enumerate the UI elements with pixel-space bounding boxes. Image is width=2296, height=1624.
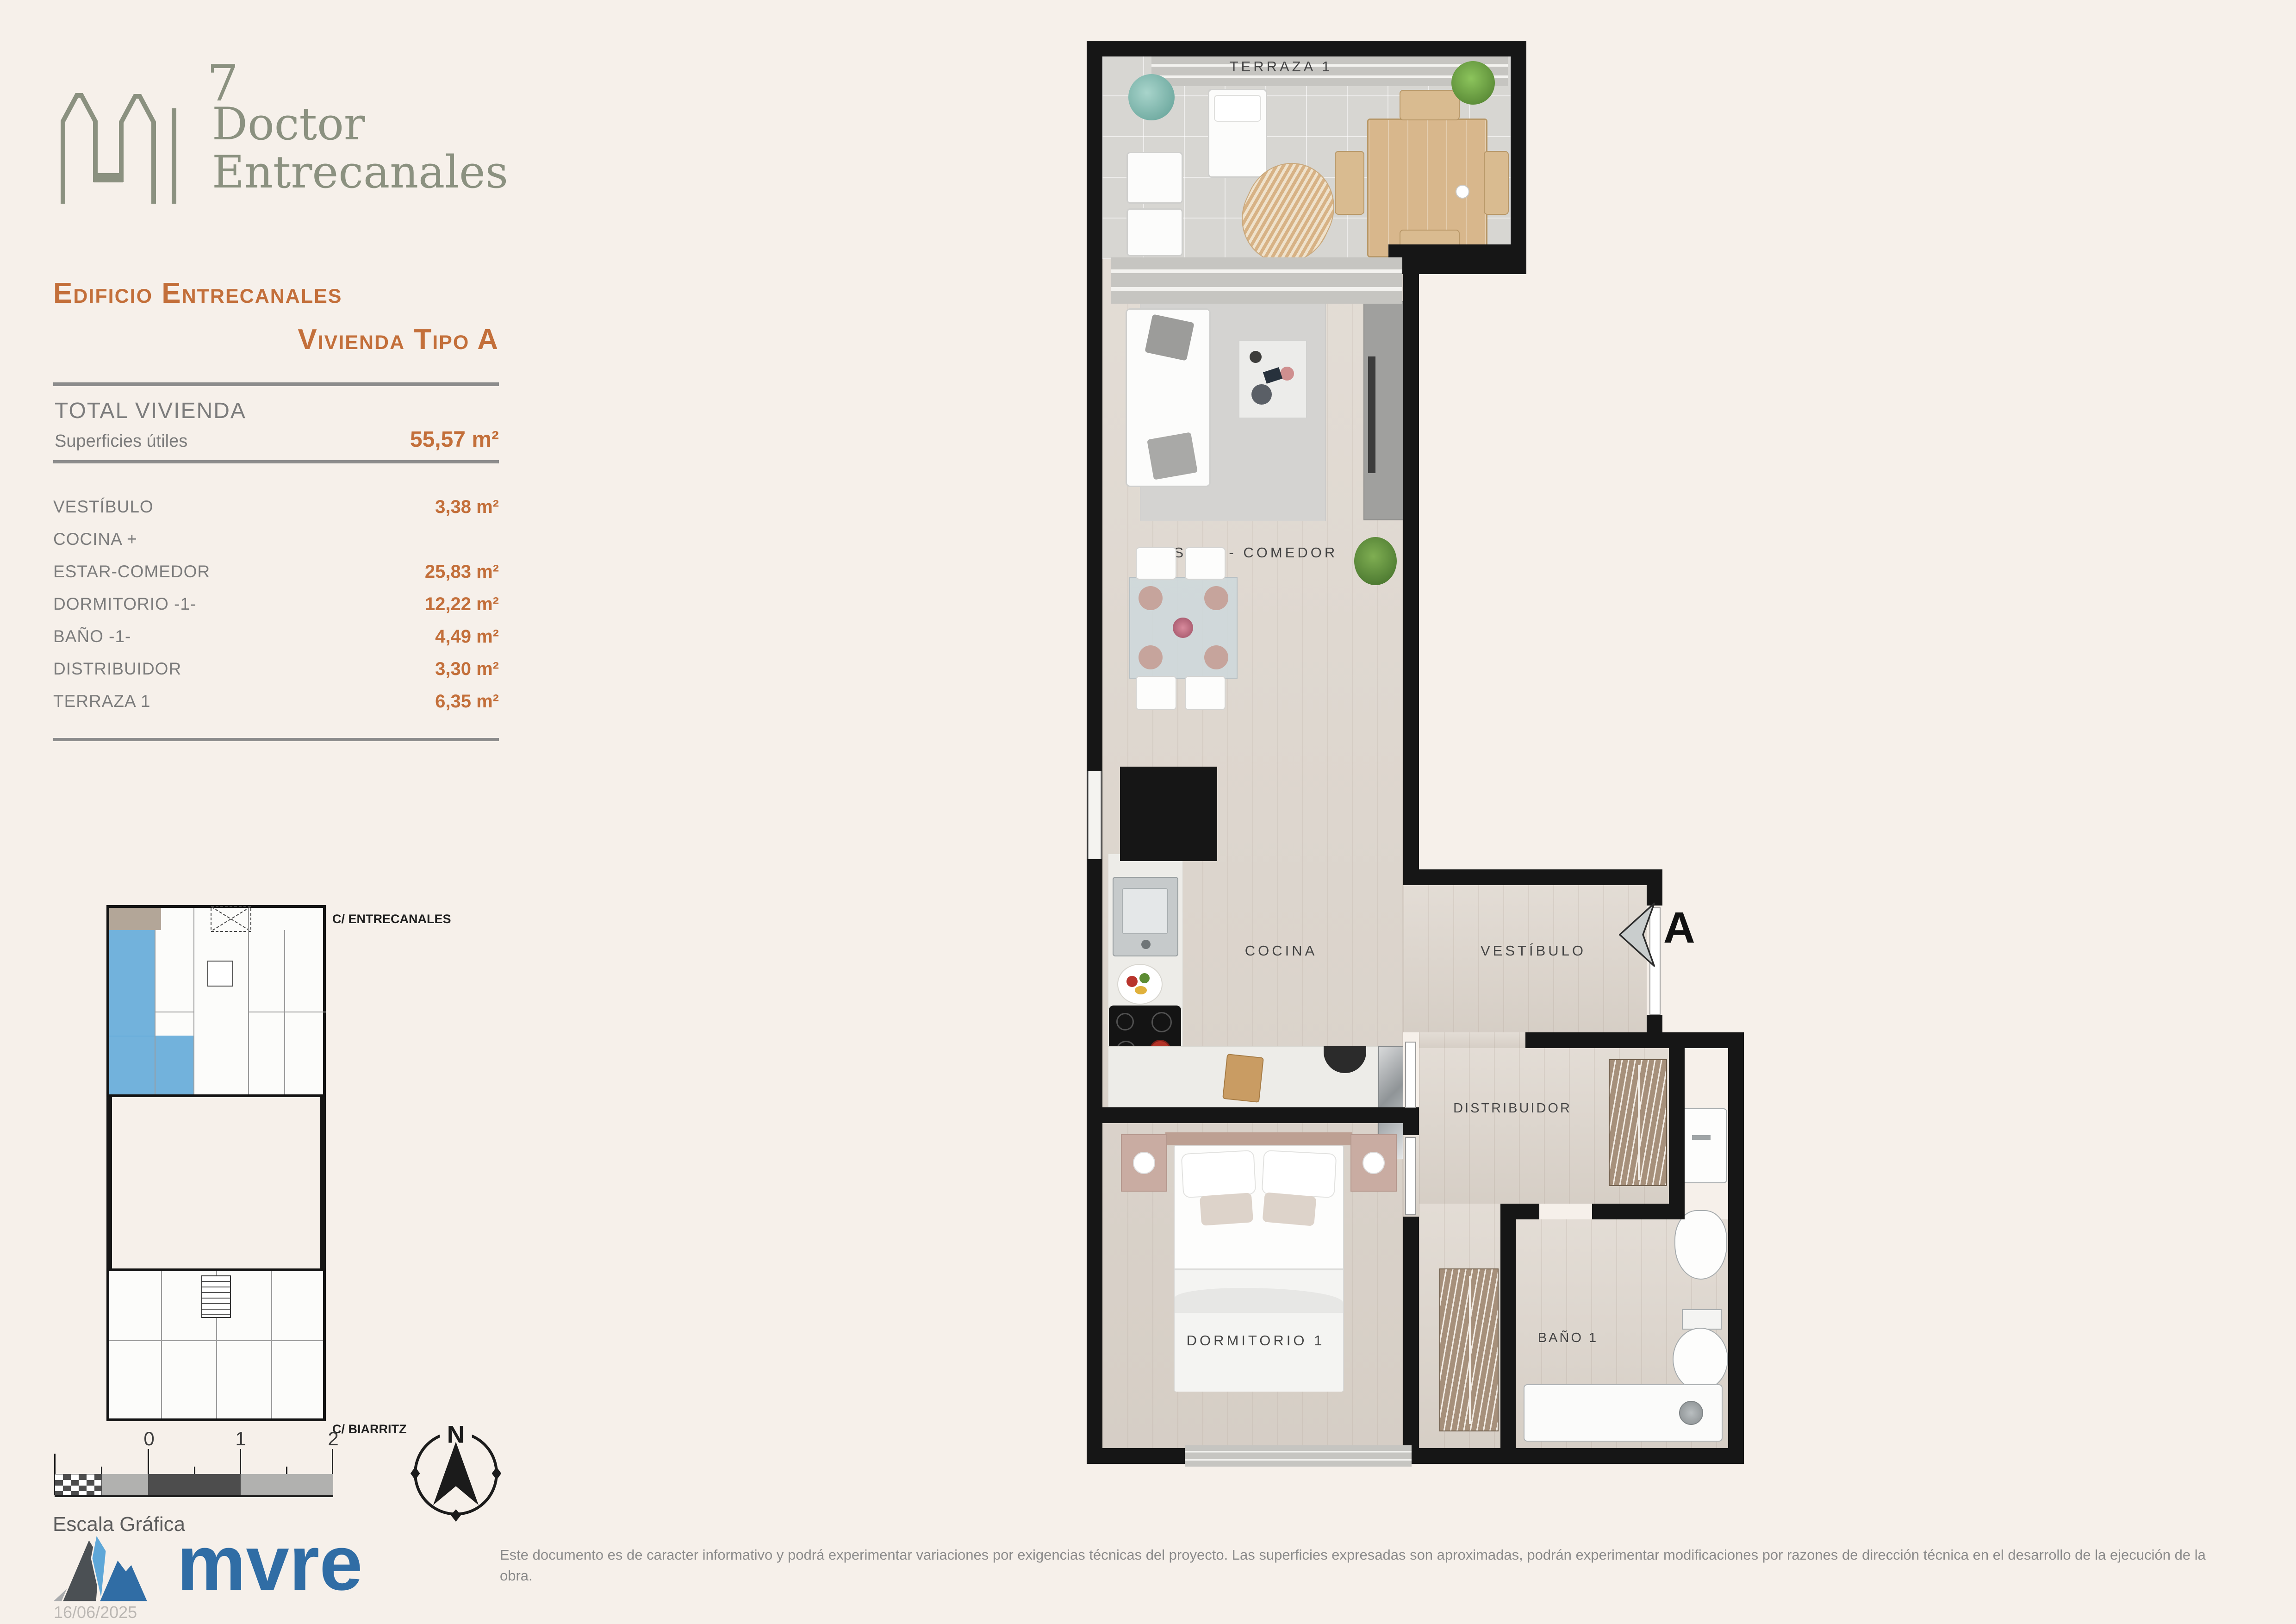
dining-table: [1129, 577, 1238, 679]
wall: [1500, 1219, 1516, 1448]
scale-label: Escala Gráfica: [53, 1513, 185, 1536]
kitchen-window: [1088, 771, 1101, 859]
page-title-building: Edificio Entrecanales: [53, 277, 342, 310]
scale-baseline: [55, 1495, 333, 1497]
divider-bottom: [53, 738, 499, 741]
north-compass-icon: N: [407, 1414, 504, 1523]
terrace-plant-teal: [1128, 74, 1175, 120]
scale-tick-0: 0: [135, 1428, 163, 1450]
fruit-plate: [1117, 964, 1163, 1005]
mvre-mountains-icon: [52, 1533, 168, 1603]
divider-mid: [53, 460, 499, 463]
footer-date: 16/06/2025: [54, 1603, 137, 1622]
entry-arrow-icon: [1619, 898, 1655, 971]
room-label-bano: BAÑO 1: [1517, 1330, 1619, 1346]
room-row: BAÑO -1-4,49 m²: [53, 620, 499, 653]
bath-bidet: [1674, 1210, 1727, 1280]
terrace-lounger-2: [1126, 208, 1183, 256]
room-row-value: 3,38 m²: [435, 497, 499, 518]
terrace-sliding-window: [1111, 257, 1402, 304]
wall: [1592, 1204, 1685, 1219]
wall: [1500, 1204, 1539, 1219]
key-plan-line: [248, 1012, 326, 1012]
bedroom-door: [1405, 1137, 1416, 1215]
room-row: TERRAZA 16,35 m²: [53, 685, 499, 718]
wall: [1403, 869, 1662, 885]
room-row: VESTÍBULO3,38 m²: [53, 491, 499, 523]
footer-disclaimer: Este documento es de caracter informativ…: [500, 1544, 2231, 1586]
hall-floor-patch: [1419, 1032, 1525, 1048]
dining-chair-2: [1185, 547, 1226, 580]
key-plan-line: [155, 1012, 193, 1012]
bed-headboard: [1165, 1132, 1352, 1145]
room-row-label: ESTAR-COMEDOR: [53, 562, 210, 581]
dining-chair-1: [1136, 547, 1176, 580]
room-label-cocina: COCINA: [1212, 943, 1350, 959]
shower-tray: [1524, 1384, 1723, 1442]
key-plan-line: [161, 1271, 162, 1418]
floor-plan: TERRAZA 1 ESTAR - COMEDOR: [1087, 41, 1744, 1464]
room-row-value: 3,30 m²: [435, 659, 499, 680]
graphic-scale: 0 1 2: [53, 1428, 344, 1500]
total-value: 55,57 m²: [53, 427, 499, 452]
nightstand-right: [1350, 1134, 1397, 1192]
terrace-plant-green: [1451, 61, 1495, 105]
nightstand-left: [1121, 1134, 1167, 1192]
room-row-value: 25,83 m²: [425, 562, 499, 582]
room-label-vestibulo: VESTÍBULO: [1462, 943, 1605, 959]
room-label-distribuidor: DISTRIBUIDOR: [1438, 1101, 1587, 1116]
key-plan-elevator: [207, 961, 233, 987]
bath-toilet: [1673, 1328, 1728, 1391]
terrace-daybed: [1208, 89, 1267, 178]
terrace-chair-top: [1400, 90, 1460, 120]
wall: [1403, 1217, 1419, 1448]
mvre-logo-text: mvre: [177, 1524, 363, 1602]
room-row-label: COCINA +: [53, 530, 137, 549]
wall: [1087, 41, 1526, 56]
key-plan-line: [271, 1271, 272, 1418]
terrace-chair-right: [1484, 151, 1509, 215]
key-plan-stairs-bottom: [201, 1275, 231, 1318]
key-plan-court-wall: [320, 1097, 326, 1268]
brand-name-line1: Doctor: [212, 98, 365, 150]
room-row-label: DORMITORIO -1-: [53, 594, 196, 614]
terrace-chair-left: [1335, 151, 1364, 215]
scale-tick-2: 2: [319, 1428, 347, 1450]
sofa: [1126, 308, 1211, 487]
room-row-label: BAÑO -1-: [53, 627, 131, 646]
room-row-value: 4,49 m²: [435, 626, 499, 647]
key-plan-line: [248, 908, 249, 1094]
street-label-top: C/ ENTRECANALES: [332, 912, 451, 926]
page-title-unit: Vivienda Tipo A: [53, 323, 499, 356]
scale-tick-1: 1: [227, 1428, 255, 1450]
wall: [1102, 1107, 1419, 1123]
bed: [1174, 1145, 1344, 1392]
key-plan: [106, 905, 326, 1424]
room-row-label: VESTÍBULO: [53, 497, 154, 517]
key-plan-terrace-patch: [109, 908, 161, 930]
room-label-terraza: TERRAZA 1: [1202, 58, 1360, 75]
cutting-board: [1222, 1054, 1264, 1103]
scale-segment-checker: [55, 1474, 102, 1495]
bedroom-window: [1185, 1445, 1412, 1467]
dining-chair-4: [1185, 676, 1226, 710]
wall: [1669, 1048, 1685, 1206]
entry-marker-label: A: [1663, 903, 1695, 953]
key-plan-line: [193, 908, 194, 1094]
total-label: TOTAL VIVIENDA: [55, 398, 246, 424]
key-plan-stairs-icon: [211, 906, 251, 932]
wall: [1728, 1032, 1744, 1464]
room-row: DORMITORIO -1-12,22 m²: [53, 588, 499, 620]
room-row-label: TERRAZA 1: [53, 692, 151, 711]
coffee-table: [1238, 340, 1307, 418]
kitchen-sink: [1113, 877, 1178, 956]
room-row: ESTAR-COMEDOR25,83 m²: [53, 556, 499, 588]
tv-unit: [1363, 301, 1404, 520]
room-row-value: 12,22 m²: [425, 594, 499, 615]
terrace-lounger-1: [1126, 152, 1183, 204]
scale-segment-light: [102, 1474, 148, 1495]
dining-chair-3: [1136, 676, 1176, 710]
wardrobe-distributor: [1609, 1059, 1667, 1186]
brand-towers-icon: [53, 66, 201, 205]
rooms-table: VESTÍBULO3,38 m²COCINA +ESTAR-COMEDOR25,…: [53, 491, 499, 718]
room-row: COCINA +: [53, 523, 499, 556]
key-plan-line: [109, 1340, 323, 1341]
key-plan-unit-highlight: [109, 930, 155, 1037]
divider-top: [53, 382, 499, 386]
room-row-value: 6,35 m²: [435, 691, 499, 712]
brand-name-line2: Entrecanales: [212, 146, 508, 198]
wall: [1525, 1032, 1744, 1048]
key-plan-unit-highlight: [109, 1036, 193, 1094]
scale-segment-dark: [148, 1474, 241, 1495]
room-label-dormitorio: DORMITORIO 1: [1163, 1332, 1348, 1349]
scale-segment-light: [241, 1474, 333, 1495]
room-row-label: DISTRIBUIDOR: [53, 659, 181, 679]
wardrobe-nook: [1439, 1268, 1499, 1431]
room-row: DISTRIBUIDOR3,30 m²: [53, 653, 499, 685]
bath-toilet-tank: [1682, 1309, 1722, 1330]
kitchen-hall-door: [1405, 1042, 1416, 1108]
key-plan-court-wall: [106, 1097, 112, 1268]
wall: [1087, 41, 1102, 1464]
brochure-page: { "brand": { "number": "7", "line1": "Do…: [0, 0, 2296, 1624]
wall: [1511, 41, 1526, 250]
wall: [1403, 259, 1419, 869]
wall-column: [1120, 767, 1217, 861]
living-plant: [1354, 537, 1397, 585]
